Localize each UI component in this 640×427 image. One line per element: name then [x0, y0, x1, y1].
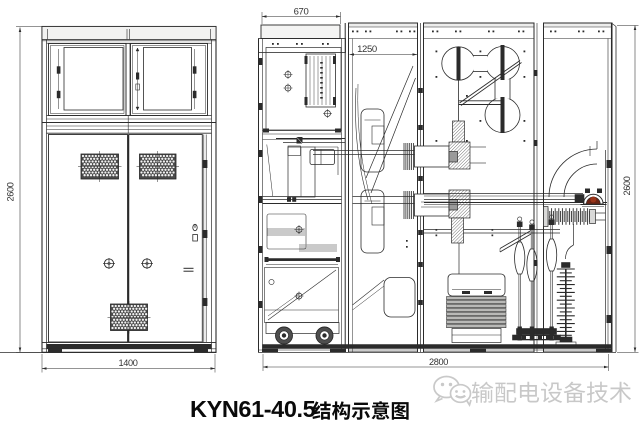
svg-text:1250: 1250 — [357, 44, 377, 55]
svg-text:2600: 2600 — [622, 176, 632, 195]
svg-text:2600: 2600 — [6, 182, 16, 201]
svg-text:670: 670 — [294, 7, 309, 18]
svg-text:2800: 2800 — [429, 357, 448, 367]
svg-text:KYN61-40.5: KYN61-40.5 — [190, 396, 316, 422]
svg-text:1400: 1400 — [118, 358, 137, 368]
